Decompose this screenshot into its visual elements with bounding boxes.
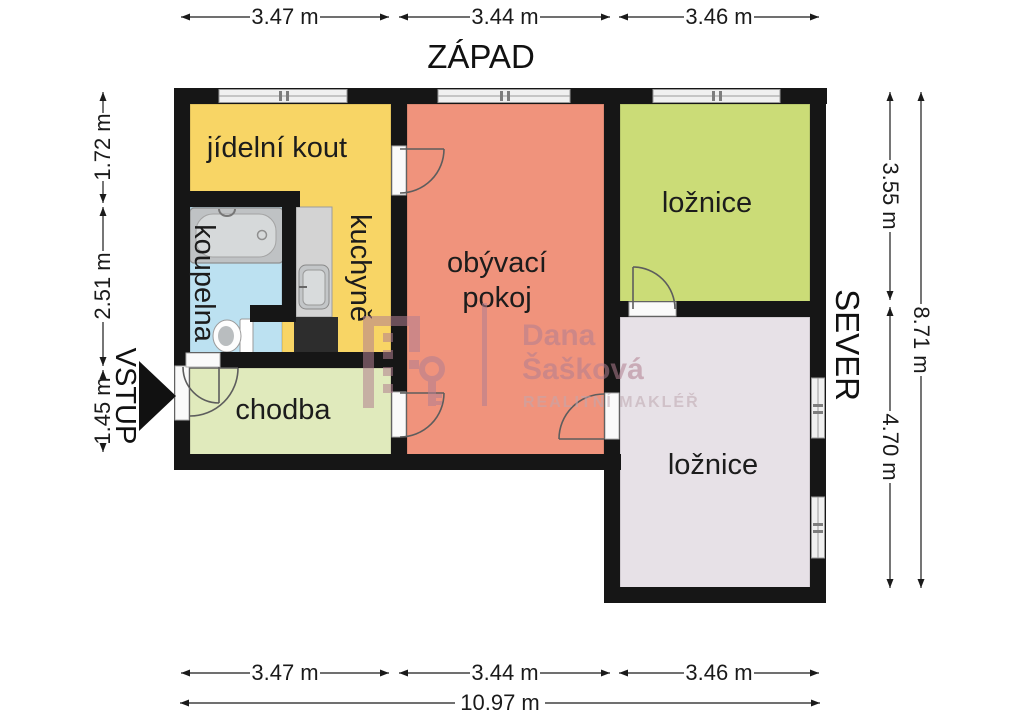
watermark-name-1: Dana — [522, 319, 596, 352]
watermark-logo-key-stem-icon — [428, 378, 436, 406]
dim-bottom-1: 3.47 m — [251, 660, 318, 685]
window-dining — [219, 90, 347, 103]
dim-right-total: 8.71 m — [909, 306, 934, 373]
dim-bottom-2: 3.44 m — [471, 660, 538, 685]
room-label-bedroom-east: ložnice — [668, 449, 758, 481]
room-label-living-1: obývací — [447, 247, 547, 279]
watermark-subtitle: REALITNÍ MAKLÉŘ — [523, 392, 700, 411]
dims-top: 3.47 m 3.44 m 3.46 m — [181, 4, 819, 29]
wall-dining-bath — [174, 191, 300, 207]
dim-top-2: 3.44 m — [471, 4, 538, 29]
window-bedroom-east-2 — [812, 497, 825, 558]
dim-left-3: 1.45 m — [90, 377, 115, 444]
door-hallway-living-threshold — [392, 392, 406, 437]
watermark-logo-key-tooth-icon — [436, 394, 442, 398]
window-living — [438, 90, 570, 103]
watermark-logo-window-icon — [409, 360, 419, 369]
wall-bath-niche — [250, 305, 296, 322]
wall-bath-kitchen — [282, 207, 296, 307]
dim-top-3: 3.46 m — [685, 4, 752, 29]
floorplan-canvas: jídelní kout kuchyně koupelna obývací po… — [0, 0, 1024, 724]
dim-top-1: 3.47 m — [251, 4, 318, 29]
window-bedroom-east-1 — [812, 378, 825, 438]
door-dining-threshold — [392, 146, 406, 195]
stove-icon — [294, 317, 338, 355]
wall-mid-right — [604, 104, 620, 588]
room-label-living-2: pokoj — [462, 282, 531, 314]
dim-left-2: 2.51 m — [90, 252, 115, 319]
dim-right-2: 4.70 m — [878, 413, 903, 480]
toilet-tank-icon — [240, 319, 253, 354]
watermark-name-2: Šašková — [522, 352, 644, 386]
room-label-kitchen: kuchyně — [344, 214, 376, 322]
watermark-logo-key-tooth-icon — [436, 401, 442, 405]
watermark-logo-window-icon — [383, 333, 393, 342]
floorplan-svg: jídelní kout kuchyně koupelna obývací po… — [0, 0, 1024, 724]
entrance-arrow-icon — [139, 361, 176, 431]
dim-bottom-3: 3.46 m — [685, 660, 752, 685]
dims-left: 1.72 m 2.51 m 1.45 m — [90, 92, 115, 452]
window-bedroom-north — [653, 90, 780, 103]
door-bathroom-threshold — [186, 353, 220, 367]
wall-bottom-right — [604, 587, 826, 603]
watermark-logo-window-icon — [383, 350, 393, 359]
dims-right: 3.55 m 4.70 m 8.71 m — [878, 92, 934, 588]
watermark-logo-window-icon — [383, 367, 393, 376]
room-label-bedroom-north: ložnice — [662, 187, 752, 219]
watermark-logo-building-right — [409, 316, 420, 352]
watermark-logo-divider — [482, 303, 487, 406]
dim-bottom-total: 10.97 m — [460, 690, 540, 715]
dim-right-1: 3.55 m — [878, 162, 903, 229]
door-bedroom-north-threshold — [629, 302, 676, 316]
dims-bottom: 3.47 m 3.44 m 3.46 m 10.97 m — [180, 660, 820, 715]
room-label-bathroom: koupelna — [188, 224, 220, 343]
watermark-logo-building-left — [363, 316, 374, 408]
dim-left-1: 1.72 m — [90, 113, 115, 180]
compass-north-label: SEVER — [829, 289, 866, 401]
room-label-hallway: chodba — [235, 394, 331, 426]
door-entrance-threshold — [175, 366, 189, 420]
watermark-logo-window-icon — [383, 384, 393, 393]
room-label-dining: jídelní kout — [206, 132, 347, 164]
compass-west-label: ZÁPAD — [427, 38, 535, 75]
rooms — [190, 104, 810, 589]
wall-bottom-left — [174, 454, 621, 470]
